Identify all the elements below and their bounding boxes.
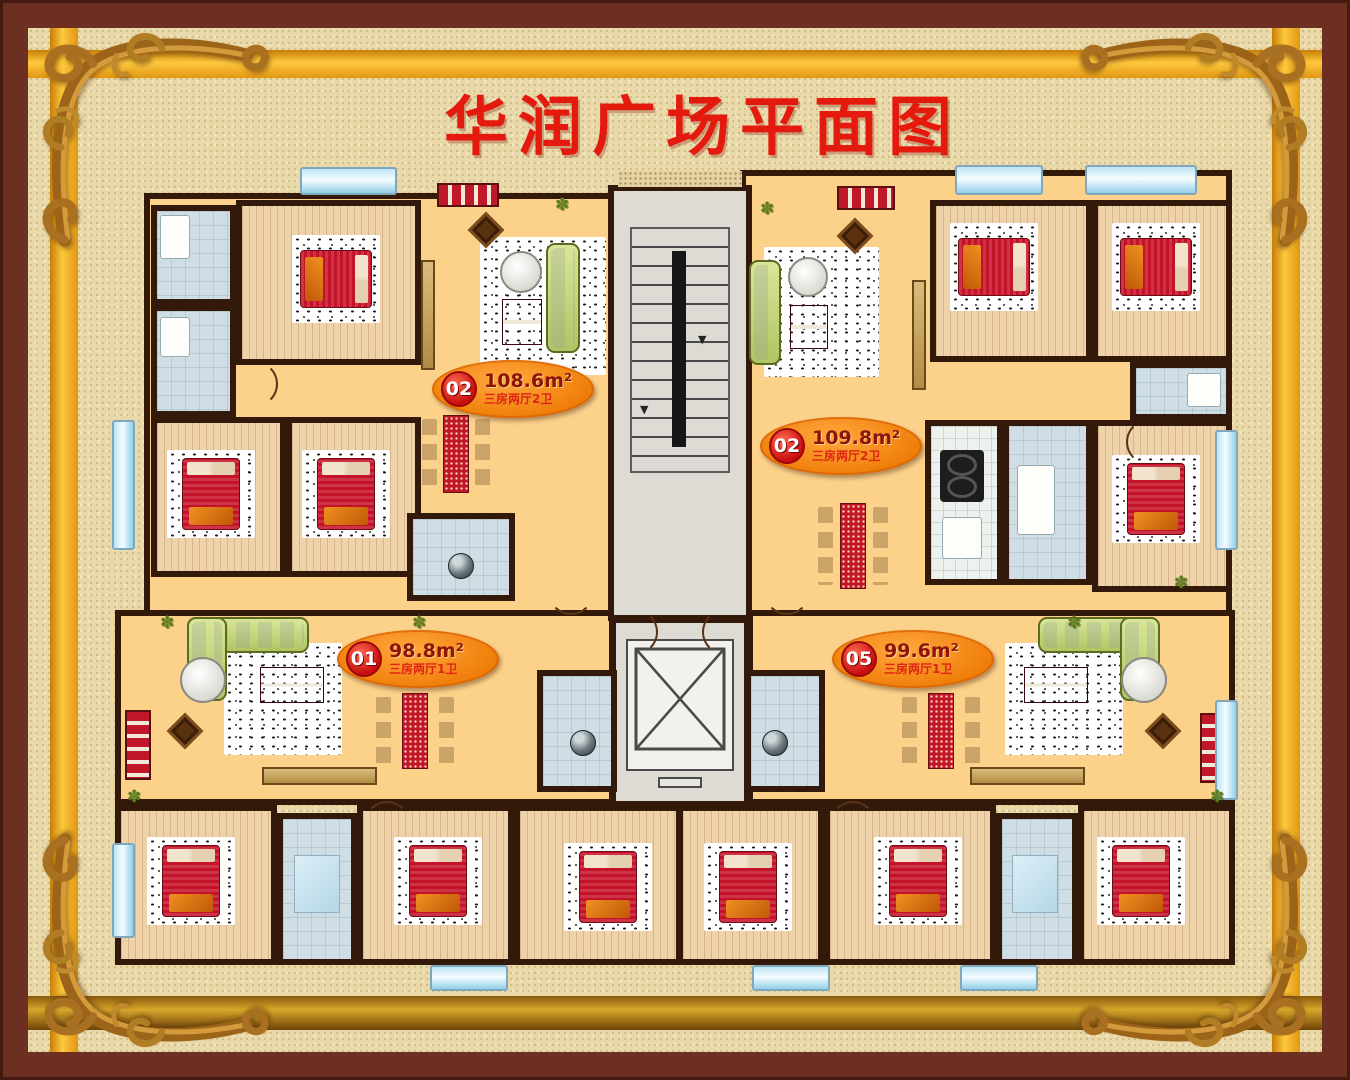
poster: 华润广场平面图 [0, 0, 1350, 1080]
dining-table [900, 693, 982, 769]
bed [719, 851, 777, 923]
bedroom-rug [874, 837, 962, 925]
plant-icon: ✽ [1210, 787, 1224, 807]
bedroom-rug [302, 450, 390, 538]
plant-icon: ✽ [555, 195, 569, 215]
door-arc [830, 801, 876, 847]
balcony [300, 167, 397, 195]
stair-arrow-icon: ▼ [640, 403, 648, 416]
unit-layout: 三房两厅1卫 [389, 663, 464, 676]
chairs [902, 697, 917, 765]
dining-table [420, 415, 492, 493]
coffee-table [502, 299, 542, 345]
balcony [430, 965, 508, 991]
bedroom-rug [292, 235, 380, 323]
chairs [965, 697, 980, 765]
table-runner [928, 693, 954, 769]
tv-cabinet [970, 767, 1085, 785]
bed [958, 238, 1030, 296]
table-runner [402, 693, 428, 769]
bathroom [745, 670, 825, 792]
bedroom-rug [1097, 837, 1185, 925]
bed [317, 458, 375, 530]
balcony [1085, 165, 1197, 195]
toilet [762, 730, 788, 756]
bed [182, 458, 240, 530]
dining-table [816, 503, 890, 589]
door-arc [702, 609, 748, 655]
chairs [475, 419, 490, 489]
sink [942, 517, 982, 559]
bedroom-rug [1112, 223, 1200, 311]
chairs [422, 419, 437, 489]
balcony [1215, 430, 1238, 550]
balcony [1215, 700, 1238, 800]
sideboard [437, 183, 499, 207]
bed [1120, 238, 1192, 296]
bedroom-rug [1112, 455, 1200, 543]
unit-layout: 三房两厅1卫 [884, 663, 959, 676]
unit-badge: 01 98.8m² 三房两厅1卫 [337, 630, 499, 688]
floor-plan: ▼ ▼ [112, 165, 1238, 995]
bed [409, 845, 467, 917]
unit-area: 108.6m² [484, 372, 572, 392]
door-arc [232, 361, 278, 407]
shower [1012, 855, 1058, 913]
bedroom-rug [950, 223, 1038, 311]
bedroom-rug [564, 843, 652, 931]
bed [1127, 463, 1185, 535]
elevator [626, 639, 734, 771]
coffee-table [790, 305, 828, 349]
tv-cabinet [912, 280, 926, 390]
background: 华润广场平面图 [28, 28, 1322, 1052]
elevator-x [628, 641, 732, 769]
round-table [1121, 657, 1167, 703]
unit-badge: 05 99.6m² 三房两厅1卫 [832, 630, 994, 688]
washer-icon [448, 553, 474, 579]
chairs [439, 697, 454, 765]
door-arc [548, 569, 594, 615]
bedroom-rug [147, 837, 235, 925]
tv-cabinet [262, 767, 377, 785]
bedroom-rug [167, 450, 255, 538]
sink [1187, 373, 1221, 407]
balcony [960, 965, 1038, 991]
bathtub [160, 215, 190, 259]
unit-area: 98.8m² [389, 642, 464, 662]
shower [294, 855, 340, 913]
bed [1112, 845, 1170, 917]
bed [162, 845, 220, 917]
balcony [112, 843, 135, 938]
round-table [180, 657, 226, 703]
plant-icon: ✽ [127, 787, 141, 807]
balcony [112, 420, 135, 550]
door-arc [764, 569, 810, 615]
unit-badge: 02 109.8m² 三房两厅2卫 [760, 417, 922, 475]
dining-table [374, 693, 456, 769]
bathtub [1017, 465, 1055, 535]
sofa [749, 260, 781, 365]
bedroom-rug [394, 837, 482, 925]
unit-number: 02 [441, 371, 477, 407]
page-title: 华润广场平面图 [328, 76, 1078, 168]
plant-icon: ✽ [760, 199, 774, 219]
sideboard [125, 710, 151, 780]
round-table [500, 251, 542, 293]
table-runner [840, 503, 866, 589]
stair-arrow-icon: ▼ [698, 333, 706, 346]
door-arc [1126, 419, 1172, 465]
plant-icon: ✽ [1174, 573, 1188, 593]
bed [579, 851, 637, 923]
balcony [752, 965, 830, 991]
unit-area: 99.6m² [884, 642, 959, 662]
sideboard [837, 186, 895, 210]
unit-layout: 三房两厅2卫 [812, 450, 900, 463]
round-table [788, 257, 828, 297]
unit-layout: 三房两厅2卫 [484, 393, 572, 406]
plant-icon: ✽ [1067, 613, 1081, 633]
unit-number: 05 [841, 641, 877, 677]
kitchen-room [925, 420, 1003, 585]
chairs [873, 507, 888, 585]
unit-area: 109.8m² [812, 429, 900, 449]
tv-cabinet [421, 260, 435, 370]
unit-badge: 02 108.6m² 三房两厅2卫 [432, 360, 594, 418]
stair-ledge [618, 171, 742, 187]
bedroom-rug [704, 843, 792, 931]
toilet [570, 730, 596, 756]
plant-icon: ✽ [160, 613, 174, 633]
door-arc [612, 609, 658, 655]
bed [300, 250, 372, 308]
unit-number: 02 [769, 428, 805, 464]
chairs [818, 507, 833, 585]
unit-number: 01 [346, 641, 382, 677]
coffee-table [260, 667, 324, 703]
coffee-table [1024, 667, 1088, 703]
chairs [376, 697, 391, 765]
bed [889, 845, 947, 917]
sink [160, 317, 190, 357]
balcony [955, 165, 1043, 195]
door-arc [364, 801, 410, 847]
stove [940, 450, 984, 502]
sofa [546, 243, 580, 353]
stair-rail [672, 251, 686, 447]
elevator-sill [658, 777, 702, 788]
table-runner [443, 415, 469, 493]
living-rug [480, 237, 606, 375]
